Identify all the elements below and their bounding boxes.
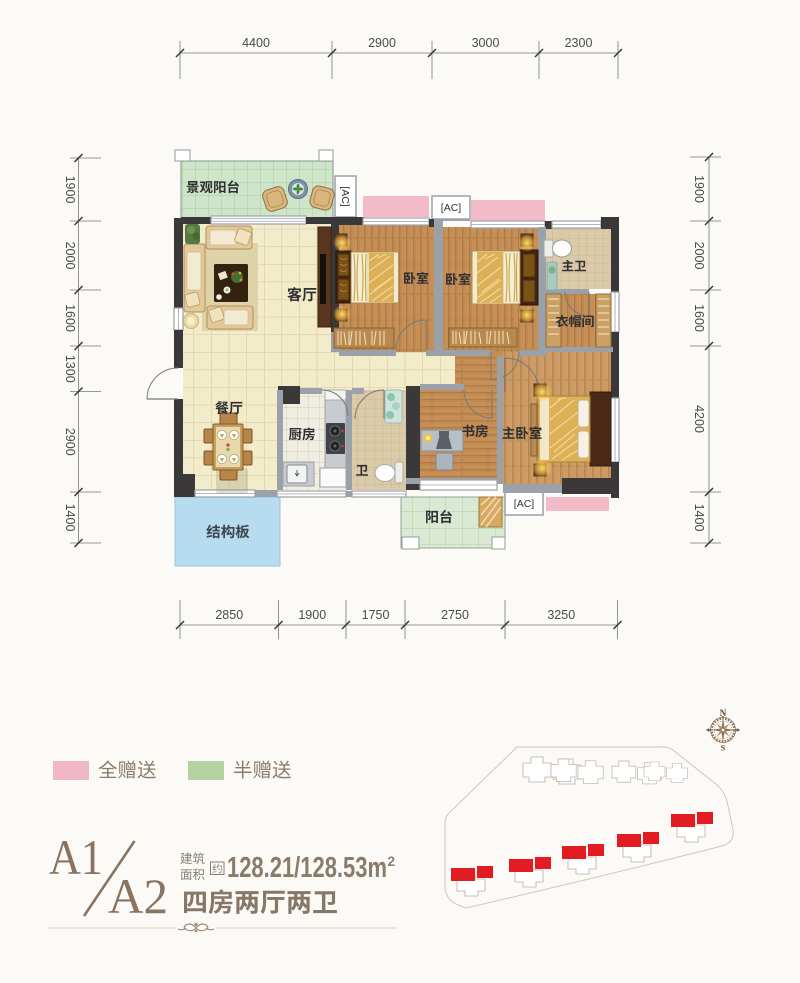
svg-text:4400: 4400 bbox=[242, 36, 270, 50]
svg-text:1900: 1900 bbox=[63, 176, 77, 204]
svg-text:1300: 1300 bbox=[63, 355, 77, 383]
svg-text:128.21/128.53m: 128.21/128.53m bbox=[227, 852, 387, 884]
svg-text:[AC]: [AC] bbox=[339, 186, 351, 207]
svg-text:1900: 1900 bbox=[692, 175, 706, 203]
svg-text:1400: 1400 bbox=[63, 504, 77, 532]
svg-text:2750: 2750 bbox=[441, 608, 469, 622]
svg-text:2300: 2300 bbox=[565, 36, 593, 50]
svg-text:1400: 1400 bbox=[692, 504, 706, 532]
svg-text:3250: 3250 bbox=[547, 608, 575, 622]
svg-text:2850: 2850 bbox=[215, 608, 243, 622]
svg-text:2000: 2000 bbox=[692, 242, 706, 270]
svg-text:2900: 2900 bbox=[63, 428, 77, 456]
svg-text:2: 2 bbox=[388, 854, 396, 869]
svg-text:S: S bbox=[721, 744, 726, 753]
svg-text:4200: 4200 bbox=[692, 405, 706, 433]
svg-text:A2: A2 bbox=[108, 868, 168, 924]
svg-text:1600: 1600 bbox=[692, 304, 706, 332]
svg-text:1600: 1600 bbox=[63, 304, 77, 332]
svg-text:1750: 1750 bbox=[362, 608, 390, 622]
svg-text:1900: 1900 bbox=[298, 608, 326, 622]
svg-text:A1: A1 bbox=[49, 829, 103, 885]
svg-text:N: N bbox=[720, 708, 727, 718]
svg-text:[AC]: [AC] bbox=[441, 202, 462, 214]
svg-text:3000: 3000 bbox=[472, 36, 500, 50]
svg-text:[AC]: [AC] bbox=[514, 498, 535, 510]
svg-text:2900: 2900 bbox=[368, 36, 396, 50]
svg-text:2000: 2000 bbox=[63, 242, 77, 270]
